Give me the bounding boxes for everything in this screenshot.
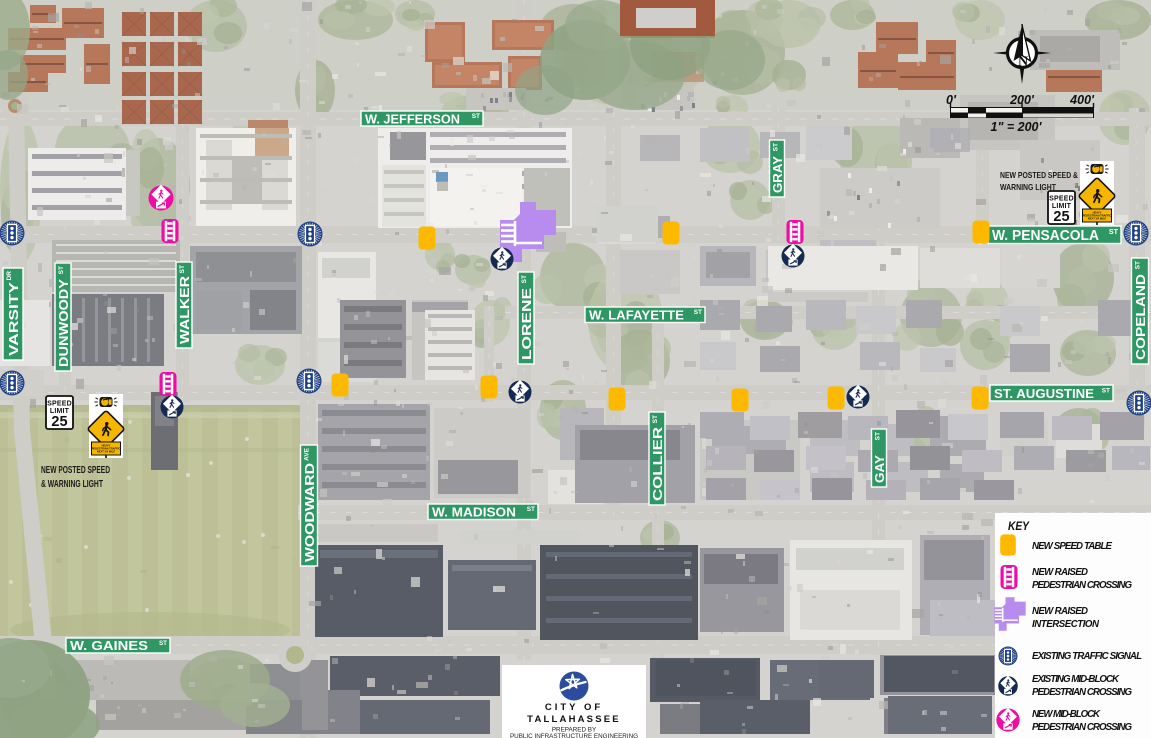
svg-text:ST: ST [1102,387,1110,394]
svg-text:ST: ST [527,506,535,513]
svg-text:WALKER: WALKER [177,275,192,344]
svg-text:ST: ST [773,143,780,151]
svg-text:ST: ST [875,432,882,440]
svg-text:WOODWARD: WOODWARD [302,463,317,562]
svg-text:DR: DR [6,271,13,281]
svg-text:N: N [1018,55,1028,70]
svg-text:& WARNING LIGHT: & WARNING LIGHT [41,479,103,490]
svg-text:LORENE: LORENE [519,288,534,360]
svg-text:400': 400' [1069,93,1095,107]
svg-text:ST: ST [694,309,702,316]
svg-text:NEW RAISED: NEW RAISED [1032,606,1088,617]
svg-text:0': 0' [946,93,957,107]
svg-text:ST: ST [521,275,528,283]
svg-text:NEW MID-BLOCK: NEW MID-BLOCK [1032,709,1101,720]
svg-text:PEDESTRIAN CROSSING: PEDESTRIAN CROSSING [1032,722,1132,733]
svg-text:NEW RAISED: NEW RAISED [1032,567,1088,578]
svg-text:WARNING LIGHT: WARNING LIGHT [1000,182,1057,192]
svg-text:1" = 200': 1" = 200' [991,120,1043,134]
svg-text:COLLIER: COLLIER [650,426,665,501]
svg-text:PEDESTRIAN CROSSING: PEDESTRIAN CROSSING [1032,580,1132,591]
svg-text:ST: ST [179,265,186,273]
svg-text:PEDESTRIAN CROSSING: PEDESTRIAN CROSSING [1032,687,1132,698]
svg-text:GAY: GAY [872,455,887,483]
svg-text:CITY OF: CITY OF [545,702,603,713]
svg-text:INTERSECTION: INTERSECTION [1032,619,1100,630]
svg-text:AVE: AVE [304,447,311,461]
svg-text:ST: ST [652,415,659,423]
svg-text:W. JEFFERSON: W. JEFFERSON [365,111,460,126]
svg-text:PUBLIC INFRASTRUCTURE ENGINEER: PUBLIC INFRASTRUCTURE ENGINEERING [510,733,638,738]
svg-text:W. LAFAYETTE: W. LAFAYETTE [589,308,684,323]
svg-text:ST: ST [159,640,167,647]
svg-text:ST: ST [1135,261,1142,269]
svg-text:W. PENSACOLA: W. PENSACOLA [992,228,1099,244]
svg-text:DUNWOODY: DUNWOODY [56,279,71,367]
svg-text:NEW POSTED SPEED &: NEW POSTED SPEED & [1000,170,1078,180]
svg-text:NEW SPEED TABLE: NEW SPEED TABLE [1032,541,1113,552]
svg-text:ST. AUGUSTINE: ST. AUGUSTINE [994,386,1094,401]
svg-text:ST: ST [472,113,480,120]
svg-text:EXISTING TRAFFIC SIGNAL: EXISTING TRAFFIC SIGNAL [1032,651,1142,662]
svg-text:VARSITY: VARSITY [6,282,21,356]
svg-text:ST: ST [58,266,65,274]
svg-text:W. GAINES: W. GAINES [70,639,148,653]
svg-text:TALLAHASSEE: TALLAHASSEE [527,714,621,725]
svg-text:NEW POSTED SPEED: NEW POSTED SPEED [41,465,110,476]
svg-text:EXISTING MID-BLOCK: EXISTING MID-BLOCK [1032,674,1120,685]
svg-text:COPELAND: COPELAND [1133,274,1148,360]
svg-text:W. MADISON: W. MADISON [432,505,516,520]
svg-text:ST: ST [1109,227,1119,236]
svg-text:KEY: KEY [1008,521,1030,533]
svg-text:GRAY: GRAY [770,156,785,193]
